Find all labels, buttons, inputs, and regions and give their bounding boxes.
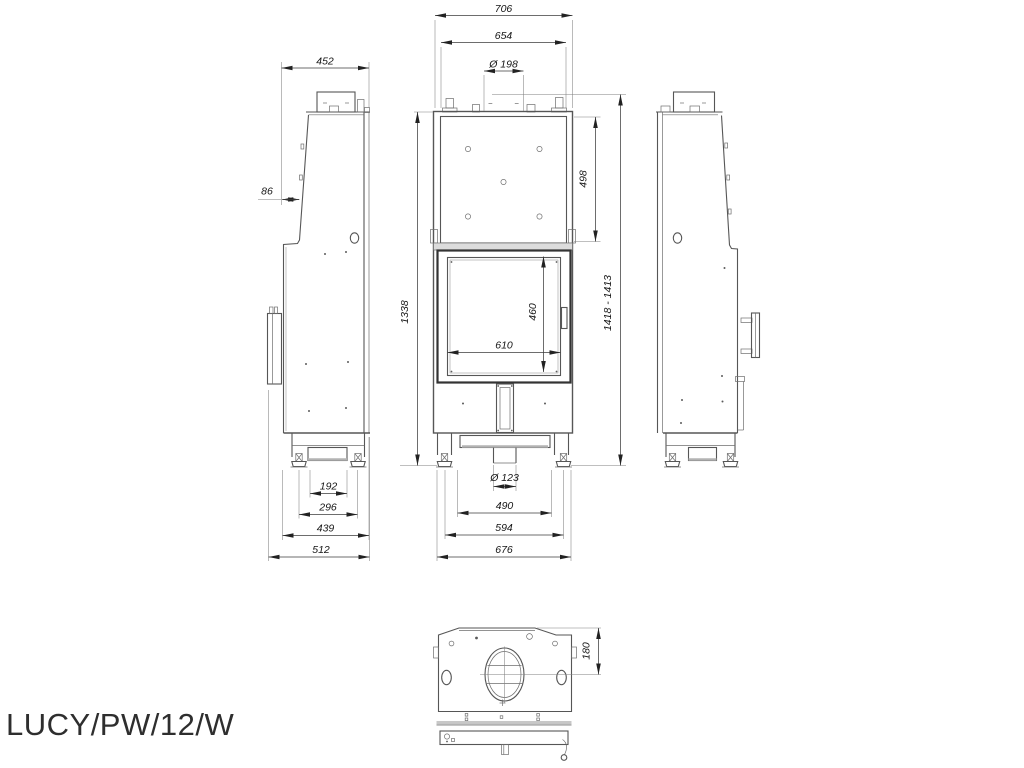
door-handle-right bbox=[741, 313, 760, 358]
dim-body-width: 654 bbox=[495, 30, 513, 42]
dim-base-width-left: 439 bbox=[317, 523, 335, 535]
dim-total-height: 1418 - 1413 bbox=[602, 275, 614, 331]
dim-glass-width: 610 bbox=[495, 340, 513, 352]
body-outline bbox=[434, 112, 573, 434]
dim-panel-height: 498 bbox=[578, 170, 590, 188]
right-side-view bbox=[656, 92, 760, 467]
top-stubs bbox=[443, 98, 567, 113]
front-trim-strip bbox=[440, 731, 568, 760]
dim-feet-spacing-left: 296 bbox=[318, 502, 337, 514]
adjustable-foot bbox=[291, 454, 308, 468]
connection-hole bbox=[673, 233, 681, 243]
dim-intake-span: 490 bbox=[496, 500, 514, 512]
base-front bbox=[436, 433, 572, 467]
dim-base-inner: 192 bbox=[320, 481, 338, 493]
front-view bbox=[431, 98, 576, 468]
flue-collar-side bbox=[674, 92, 715, 112]
dim-top-offset: 86 bbox=[261, 186, 273, 198]
technical-drawing-sheet: 180 706 654 Ø 198 1338 498 1418 - 1413 4… bbox=[0, 0, 1024, 768]
door-handle-left bbox=[268, 307, 282, 384]
dim-overall-width: 706 bbox=[495, 3, 513, 15]
flue-collar-side bbox=[317, 92, 355, 112]
dim-base-width-front: 676 bbox=[495, 544, 513, 556]
adjustable-foot bbox=[722, 454, 739, 468]
dim-feet-spacing-front: 594 bbox=[495, 522, 513, 534]
cold-hand-lever bbox=[563, 740, 567, 755]
door-latch bbox=[562, 308, 568, 329]
water-stub bbox=[358, 100, 365, 113]
dim-depth: 452 bbox=[316, 56, 334, 68]
adjustable-foot bbox=[555, 454, 572, 468]
dim-flue-diameter: Ø 198 bbox=[488, 59, 518, 71]
adjustable-foot bbox=[436, 454, 453, 468]
dim-intake-diameter: Ø 123 bbox=[489, 472, 519, 484]
left-side-view bbox=[268, 92, 371, 467]
center-tab bbox=[502, 745, 509, 755]
dim-overall-depth: 512 bbox=[312, 544, 330, 556]
dim-glass-height: 460 bbox=[527, 303, 539, 321]
glass-door bbox=[438, 251, 571, 383]
lower-panel bbox=[462, 384, 546, 433]
dim-flue-offset: 180 bbox=[581, 642, 593, 660]
connection-hole bbox=[350, 233, 358, 243]
base-left bbox=[291, 433, 367, 467]
flue-outlet bbox=[480, 647, 530, 704]
drawing-canvas: 180 706 654 Ø 198 1338 498 1418 - 1413 4… bbox=[0, 0, 1024, 768]
base-right bbox=[664, 433, 739, 467]
product-model-label: LUCY/PW/12/W bbox=[6, 707, 234, 743]
dim-body-height: 1338 bbox=[399, 300, 411, 324]
top-view: 180 bbox=[434, 628, 602, 760]
